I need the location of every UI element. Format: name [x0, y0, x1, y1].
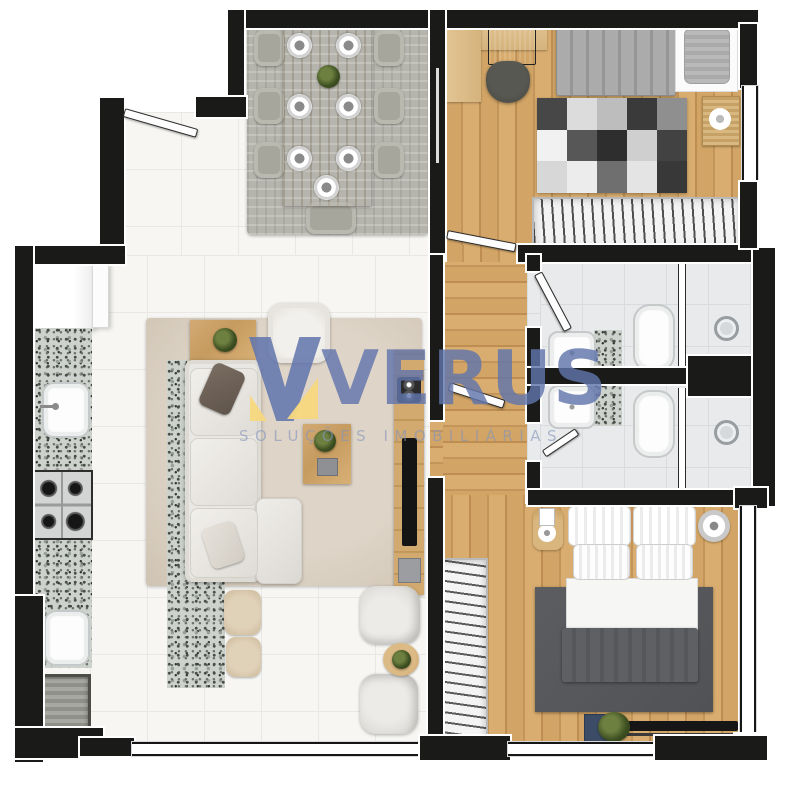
- wall-bedroom2-left: [428, 478, 443, 740]
- rug-patch: [657, 161, 687, 193]
- open-wardrobe: [532, 197, 742, 249]
- dining-chair: [254, 88, 284, 124]
- rug-patch: [657, 130, 687, 162]
- desk-return: [447, 20, 481, 102]
- shower-head: [714, 420, 739, 445]
- window-bedroom2-bottom: [508, 742, 657, 756]
- rug-patch: [537, 130, 567, 162]
- wall-upper-left: [100, 98, 124, 254]
- wall-right-c: [735, 488, 767, 508]
- doorway-hall: [430, 420, 443, 478]
- bed-blanket: [562, 628, 698, 682]
- speaker: [397, 377, 421, 403]
- wall-right-b: [740, 182, 757, 248]
- faucet-head: [52, 403, 59, 410]
- wall-bath-left-a: [527, 255, 540, 271]
- plant: [314, 430, 336, 452]
- tray: [317, 458, 338, 476]
- lounge-pouf: [360, 586, 420, 644]
- laundry-sink: [44, 610, 90, 666]
- wall-bottom-a: [420, 736, 510, 760]
- dining-chair: [254, 142, 284, 178]
- wall-entry-right: [196, 97, 246, 117]
- doorway-bath2: [527, 422, 540, 462]
- shower-head: [714, 316, 739, 341]
- bar-stool: [226, 637, 261, 677]
- centerpiece-plant: [317, 65, 340, 88]
- lamp: [538, 524, 556, 542]
- rug-patch: [597, 161, 627, 193]
- wall-bedroom2-top: [528, 490, 755, 505]
- wall-hallway-left: [430, 255, 443, 420]
- rug-patch: [627, 130, 657, 162]
- plant: [392, 650, 411, 669]
- dining-chair: [374, 142, 404, 178]
- checkered-rug: [537, 98, 687, 193]
- place-setting: [336, 33, 361, 58]
- bar-stool: [224, 590, 261, 635]
- wall-bedroom1-bottom: [518, 245, 758, 262]
- place-setting: [287, 94, 312, 119]
- shower-glass: [678, 262, 686, 368]
- pillow: [573, 544, 630, 580]
- upper-cabinet: [28, 260, 94, 330]
- place-setting: [336, 94, 361, 119]
- vanity-sink: [548, 385, 596, 429]
- lounge-pouf: [360, 674, 418, 734]
- sofa-cushion: [190, 438, 258, 506]
- notepad: [539, 508, 555, 526]
- floor-plan: VERUS SOLUÇÕES IMOBILIÁRIAS: [0, 0, 800, 800]
- pillow: [684, 28, 730, 84]
- dining-chair: [306, 202, 356, 234]
- granite-vanity: [594, 384, 622, 426]
- wall-right-a: [740, 24, 757, 88]
- place-setting: [314, 175, 339, 200]
- rug-patch: [567, 98, 597, 130]
- dining-chair: [254, 30, 284, 66]
- rug-patch: [537, 161, 567, 193]
- counter-strip: [167, 360, 187, 565]
- window-bedroom2: [740, 506, 756, 736]
- wall-bottom-left-step: [80, 738, 134, 756]
- rug-patch: [597, 98, 627, 130]
- plant: [213, 328, 237, 352]
- rug-patch: [567, 161, 597, 193]
- shower-glass: [678, 388, 686, 494]
- place-setting: [336, 146, 361, 171]
- console-object: [398, 558, 421, 583]
- hallway-floor: [432, 255, 528, 505]
- rug-patch: [627, 98, 657, 130]
- armchair: [268, 303, 330, 363]
- pillow: [633, 506, 696, 546]
- wall-bath-right: [753, 248, 775, 506]
- gas-cooktop: [31, 470, 93, 540]
- window-bedroom1: [742, 86, 758, 184]
- cup: [709, 108, 731, 130]
- wall-top: [228, 10, 758, 28]
- office-chair: [486, 61, 530, 103]
- sofa-chaise: [256, 498, 302, 584]
- kitchen-sink: [42, 382, 90, 438]
- window-living-balcony: [132, 742, 430, 756]
- laptop: [488, 26, 536, 65]
- wall-panel-slit: [436, 68, 439, 163]
- rug-patch: [567, 130, 597, 162]
- wall-bottom-b: [655, 736, 767, 760]
- single-bed: [556, 20, 676, 96]
- toilet: [633, 390, 675, 458]
- tv: [402, 438, 417, 546]
- rug-patch: [597, 130, 627, 162]
- tv: [628, 721, 738, 731]
- rug-patch: [537, 98, 567, 130]
- dining-chair: [374, 30, 404, 66]
- rug-patch: [657, 98, 687, 130]
- place-setting: [287, 33, 312, 58]
- granite-vanity: [594, 330, 622, 372]
- rug-patch: [627, 161, 657, 193]
- wall-bath-divider: [527, 368, 692, 384]
- pillow: [568, 506, 631, 546]
- place-setting: [287, 146, 312, 171]
- plant: [598, 712, 630, 742]
- pillow: [636, 544, 693, 580]
- toilet: [633, 304, 675, 372]
- round-speaker: [698, 510, 730, 542]
- dining-chair: [374, 88, 404, 124]
- cabinet-door-panel: [92, 264, 109, 328]
